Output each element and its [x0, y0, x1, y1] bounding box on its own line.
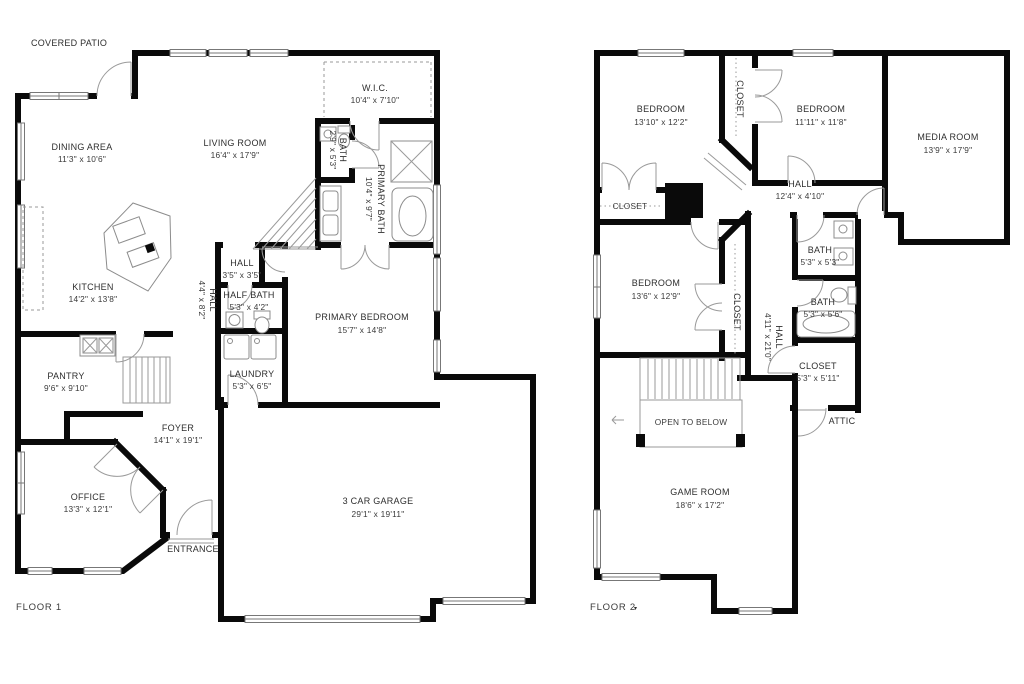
kitchen-island-icon: [104, 203, 171, 291]
bath2-dims: 5'3" x 5'6": [803, 309, 842, 319]
media-room-door-icon: [857, 188, 884, 215]
foyer-dims: 14'1" x 19'1": [154, 435, 203, 445]
living-dims: 16'4" x 17'9": [211, 150, 260, 160]
primary-bedroom-label: PRIMARY BEDROOM: [315, 312, 409, 322]
half-bath-label: HALF BATH: [223, 290, 274, 300]
half-bath-dims: 5'3" x 4'2": [229, 302, 268, 312]
bedroom3-dims: 13'6" x 12'9": [632, 291, 681, 301]
bath-label: BATH: [338, 138, 348, 162]
garage-dims: 29'1" x 19'11": [352, 509, 405, 519]
bedroom3-closet-door-bottom-icon: [695, 303, 722, 330]
bath1-label: BATH: [808, 245, 832, 255]
living-label: LIVING ROOM: [204, 138, 267, 148]
primary-bath-label: PRIMARY BATH: [376, 164, 386, 234]
pantry-dims: 9'6" x 9'10": [44, 383, 88, 393]
stair-cap-left: [636, 434, 645, 447]
wic-dims: 10'4" x 7'10": [351, 95, 400, 105]
pantry-label: PANTRY: [47, 371, 84, 381]
closet-bed1-label: CLOSET: [613, 201, 648, 211]
bath1-door-icon: [797, 215, 824, 242]
dryer-icon: [251, 335, 276, 359]
small-bath-door-icon: [352, 141, 379, 168]
game-room-label: GAME ROOM: [670, 487, 729, 497]
floor1-plan: COVERED PATIO DINING AREA 11'3" x 10'6" …: [16, 38, 533, 623]
stairs-up-icon: [253, 178, 316, 249]
foyer-label: FOYER: [162, 423, 195, 433]
patio-door-icon: [97, 62, 131, 96]
open-to-below-label: OPEN TO BELOW: [655, 417, 728, 427]
closet-strip-label: CLOSET: [735, 80, 745, 118]
stair-direction-arrow-icon: [612, 416, 624, 424]
dining-label: DINING AREA: [52, 142, 113, 152]
bath2-label: BATH: [811, 297, 835, 307]
hall2-dims: 4'11" x 21'0": [763, 313, 773, 361]
bedroom3-label: BEDROOM: [632, 278, 680, 288]
bedroom1-label: BEDROOM: [637, 104, 685, 114]
attic-door-icon: [798, 408, 826, 436]
stair-cap-right: [736, 434, 745, 447]
hall-label: HALL: [230, 258, 254, 268]
floor2-title: FLOOR 2: [590, 602, 636, 613]
kitchen-label: KITCHEN: [72, 282, 113, 292]
laundry-dims: 5'3" x 6'5": [232, 381, 271, 391]
floor-plan-svg: COVERED PATIO DINING AREA 11'3" x 10'6" …: [0, 0, 1024, 684]
toilet-icon: [338, 126, 350, 133]
bath-dims: 2'9" x 5'3": [328, 130, 338, 169]
office-label: OFFICE: [71, 492, 106, 502]
dining-dims: 11'3" x 10'6": [58, 154, 106, 164]
kitchen-counter-icon: [23, 207, 43, 310]
attic-label: ATTIC: [829, 416, 856, 426]
wall-mass: [665, 183, 703, 222]
kitchen-dims: 14'2" x 13'8": [69, 294, 118, 304]
floor2-labels: BEDROOM 13'10" x 12'2" CLOSET BEDROOM 11…: [590, 80, 979, 613]
floor2-marker-icon: ▾: [634, 606, 637, 612]
laundry-label: LAUNDRY: [230, 369, 275, 379]
covered-patio-label: COVERED PATIO: [31, 38, 107, 48]
closet-double-door-right-icon: [629, 163, 656, 190]
washer-icon: [224, 335, 249, 359]
floor-plan-page: COVERED PATIO DINING AREA 11'3" x 10'6" …: [0, 0, 1024, 684]
media-room-label: MEDIA ROOM: [917, 132, 978, 142]
floor1-title: FLOOR 1: [16, 602, 62, 613]
hall1-label: HALL: [788, 179, 812, 189]
hall-closet-label: CLOSET: [799, 361, 837, 371]
primary-bedroom-dims: 15'7" x 14'8": [338, 325, 387, 335]
hall-dims: 3'5" x 3'5": [222, 270, 261, 280]
hall-closet-dims: 5'3" x 5'11": [796, 373, 839, 383]
office-dims: 13'3" x 12'1": [64, 504, 113, 514]
toilet-tank-icon: [848, 287, 856, 304]
bedroom3-entry-door-icon: [691, 222, 718, 249]
entrance-door-icon: [177, 500, 212, 535]
primary-bath-dims: 10'4" x 9'7": [364, 177, 374, 221]
bedroom1-dims: 13'10" x 12'2": [634, 117, 688, 127]
hall2-label: HALL: [774, 325, 784, 349]
closet-bed3-label: CLOSET: [732, 293, 742, 331]
stairs-down-icon: [130, 357, 166, 403]
hall-corridor-label: HALL: [208, 288, 218, 312]
bedroom2-label: BEDROOM: [797, 104, 845, 114]
stairs-icon: [648, 359, 732, 399]
bedroom2-closet-door-bottom-icon: [755, 95, 782, 122]
hall1-dims: 12'4" x 4'10": [776, 191, 825, 201]
floor2-stairs: [612, 358, 742, 447]
entrance-threshold-icon: [168, 539, 214, 543]
wic-label: W.I.C.: [362, 83, 388, 93]
bedroom2-closet-door-top-icon: [755, 70, 782, 97]
media-room-dims: 13'9" x 17'9": [924, 145, 973, 155]
bedroom2-dims: 11'11" x 11'8": [795, 117, 847, 127]
hall-corridor-dims: 4'4" x 8'2": [197, 280, 207, 319]
closet-double-door-left-icon: [602, 163, 629, 190]
garage-label: 3 CAR GARAGE: [343, 496, 414, 506]
game-room-dims: 18'6" x 17'2": [676, 500, 725, 510]
bath1-dims: 5'3" x 5'3": [800, 257, 839, 267]
floor2-plan: BEDROOM 13'10" x 12'2" CLOSET BEDROOM 11…: [590, 50, 1007, 615]
entrance-label: ENTRANCE: [167, 544, 219, 554]
